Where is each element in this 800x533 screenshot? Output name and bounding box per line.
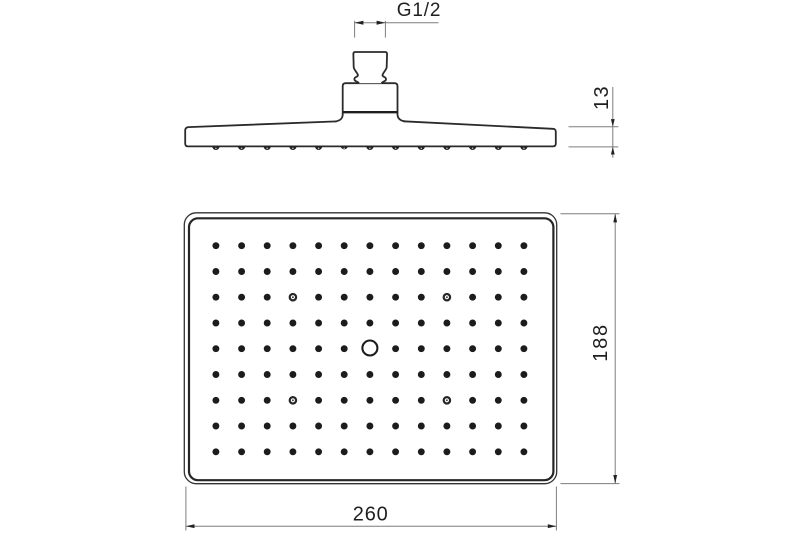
svg-text:188: 188: [590, 323, 612, 362]
svg-text:13: 13: [591, 85, 613, 110]
svg-text:G1/2: G1/2: [397, 0, 441, 21]
svg-text:260: 260: [353, 503, 389, 525]
